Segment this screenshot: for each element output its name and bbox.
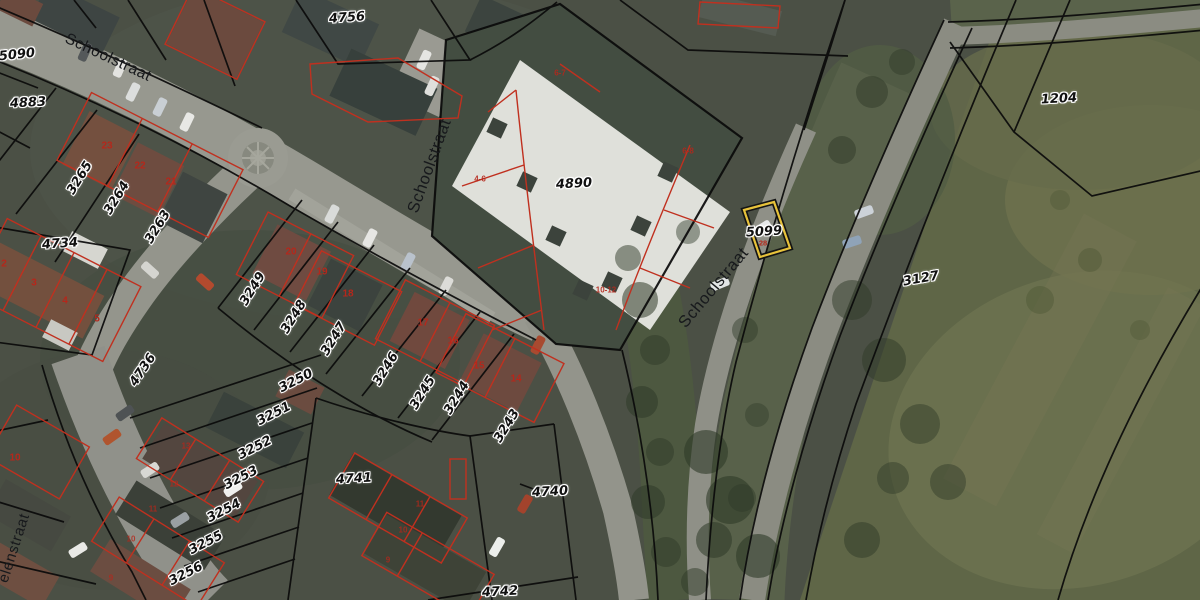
aerial-basemap — [0, 0, 1200, 600]
roundabout — [228, 128, 288, 188]
map-viewport[interactable]: cadastral aerial map — [0, 0, 1200, 600]
